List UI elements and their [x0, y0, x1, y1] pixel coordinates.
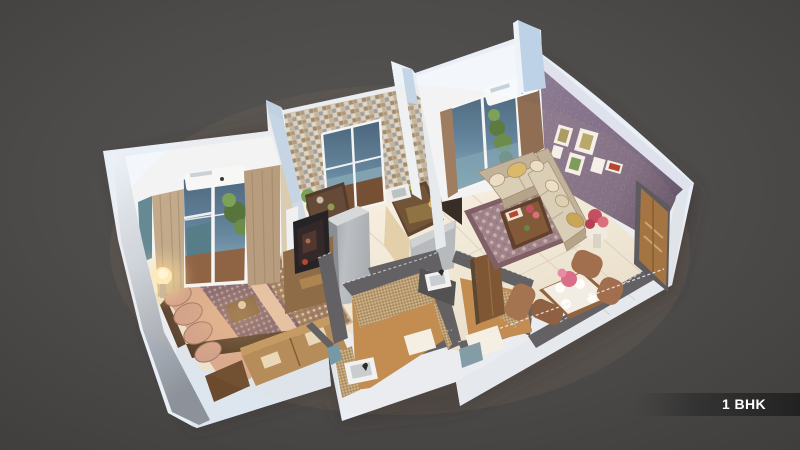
svg-text:1 BHK: 1 BHK	[722, 396, 766, 412]
